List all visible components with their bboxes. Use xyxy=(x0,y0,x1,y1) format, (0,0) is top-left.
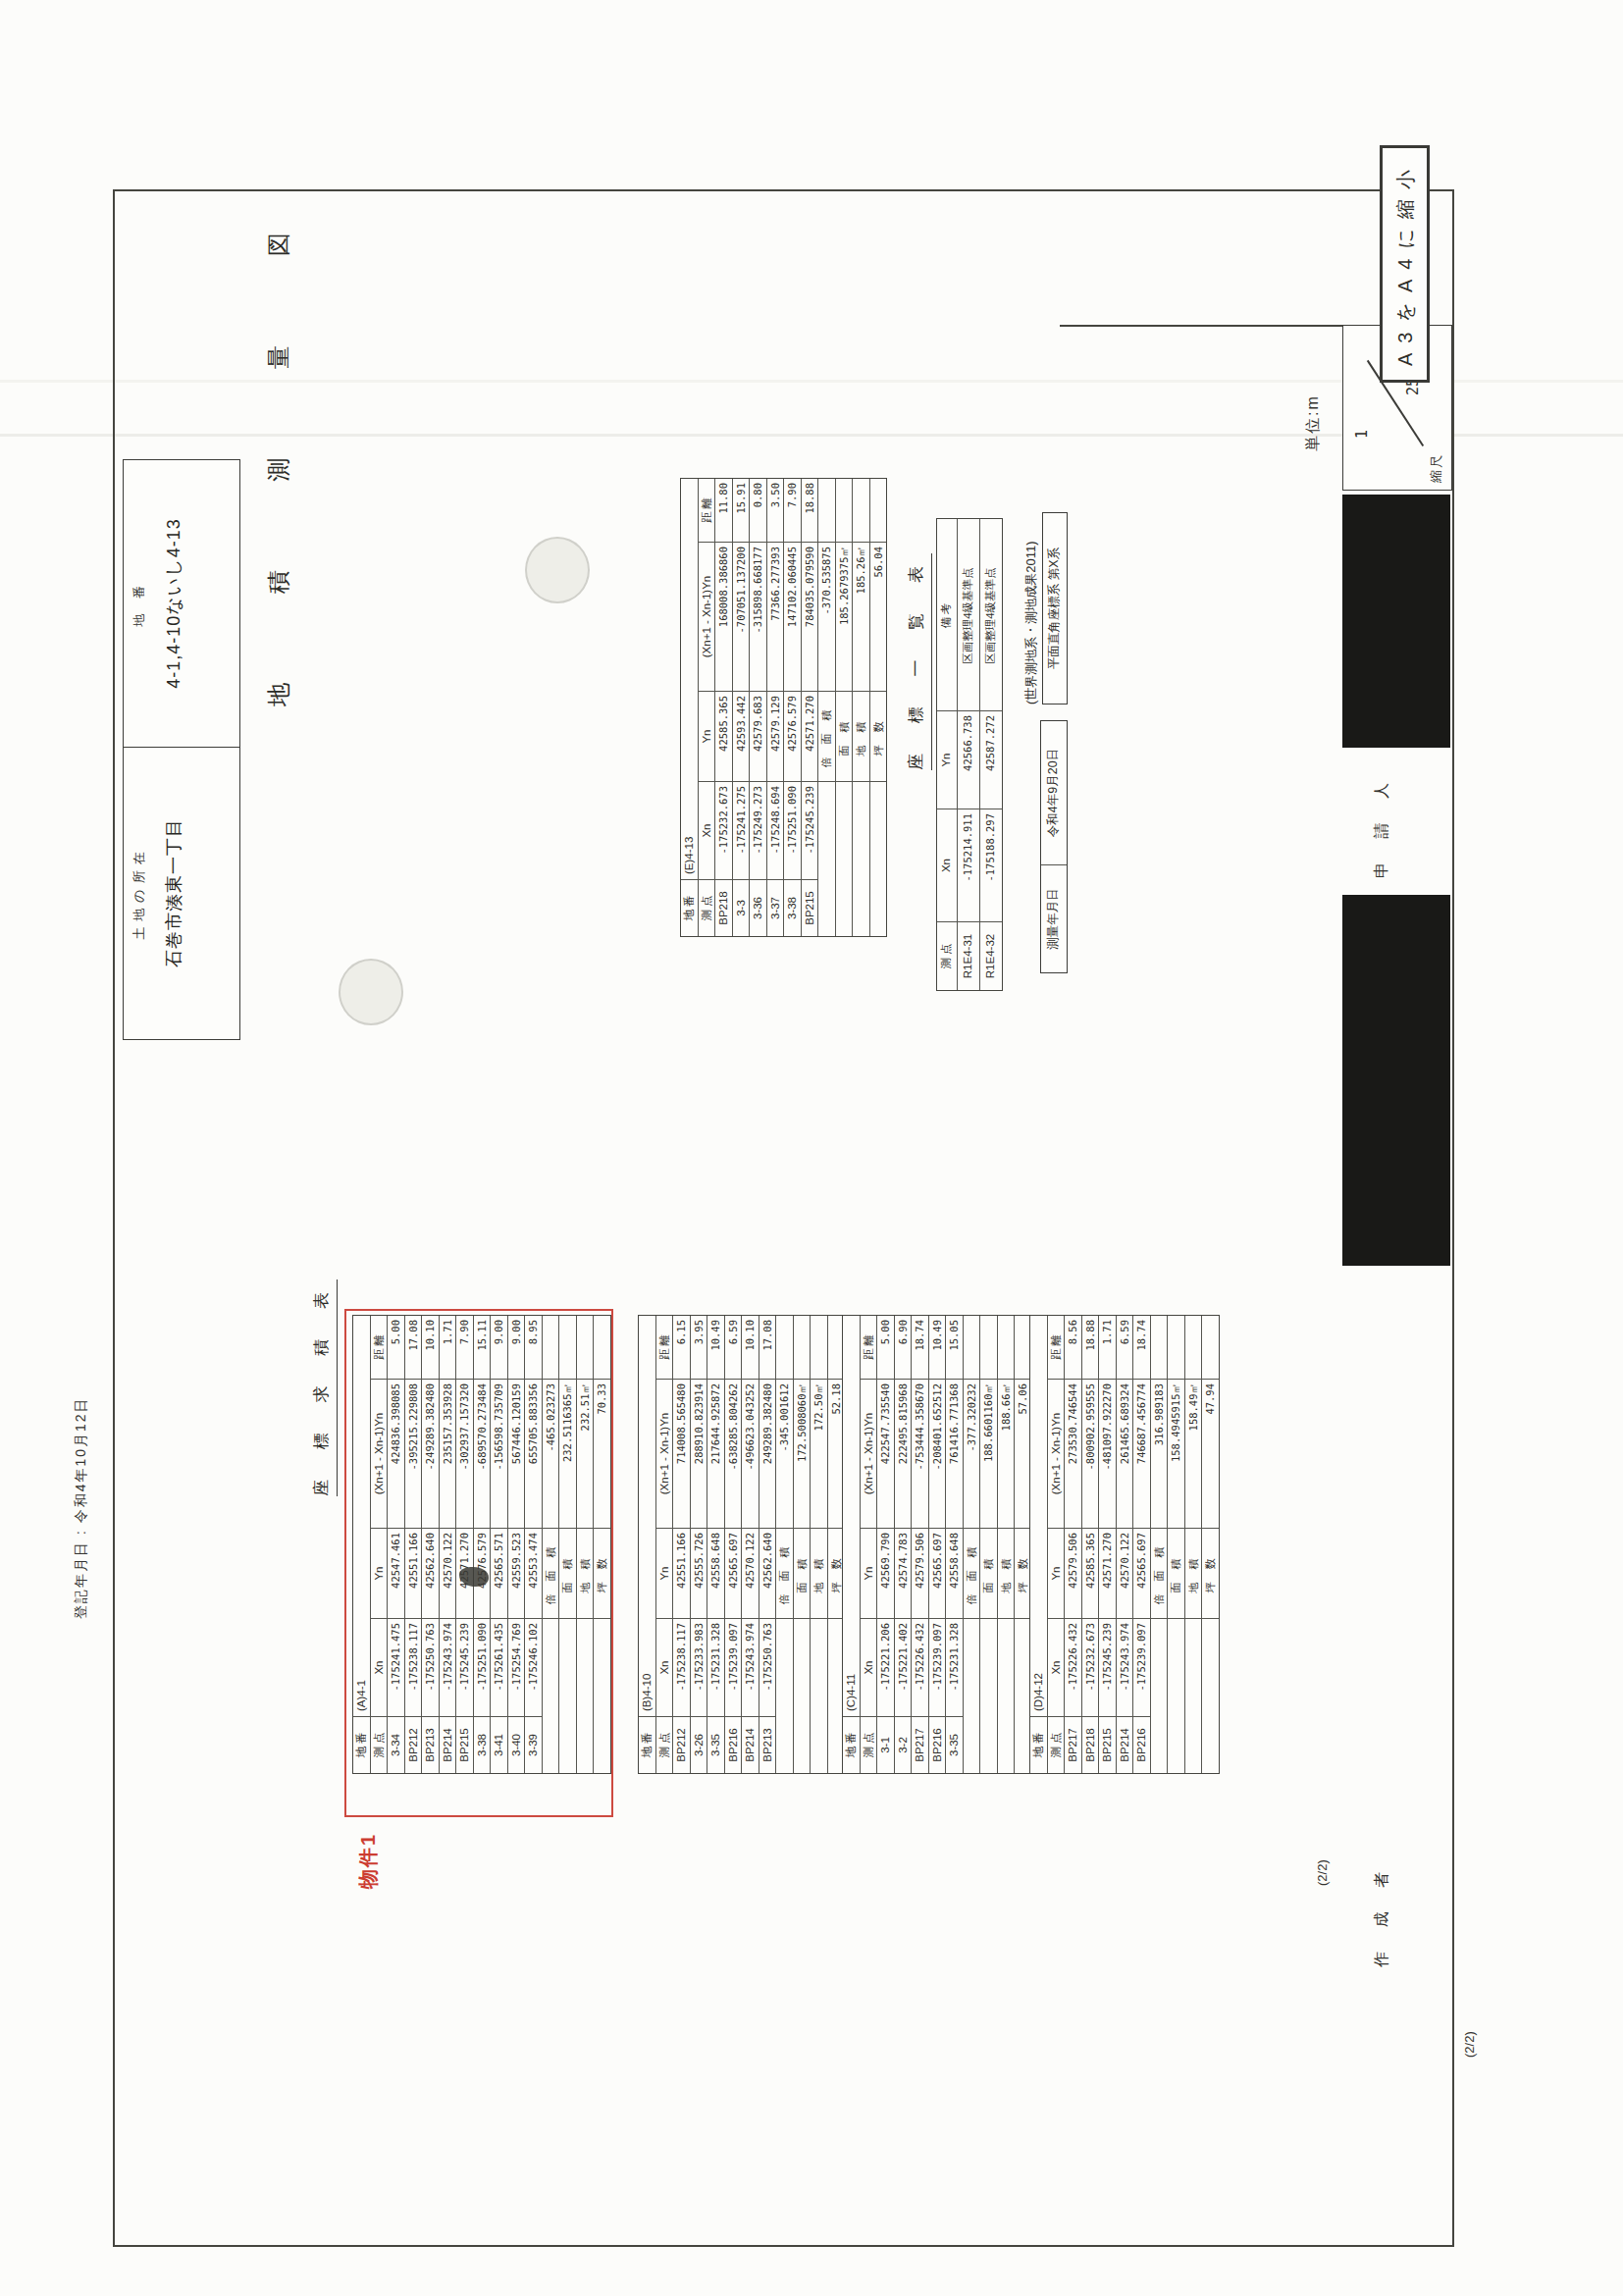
value-cell: -689570.273484 xyxy=(474,1379,491,1528)
value-cell: 区画整理4級基準点 xyxy=(958,521,979,710)
total-value-cell: 188.6601160㎡ xyxy=(980,1379,997,1528)
table-row: 3-37-175248.69442579.12977366.2773933.50 xyxy=(767,479,785,936)
value-cell: -800902.959555 xyxy=(1082,1379,1099,1528)
table-row: 測 点XnYn(Xn+1 - Xn-1)Yn距 離 xyxy=(699,479,716,936)
total-value-cell: 70.33 xyxy=(594,1379,610,1528)
table-row: BP216-175239.09742565.697-208401.6525121… xyxy=(929,1316,947,1773)
value-cell: -638285.804262 xyxy=(725,1379,742,1528)
table-row: 倍 面 積-377.320232 xyxy=(964,1316,981,1773)
value-cell: 17.08 xyxy=(405,1316,422,1379)
value-cell: -175188.297 xyxy=(980,809,1002,921)
table-row: BP214-175243.97442570.122235157.3539281.… xyxy=(440,1316,457,1773)
table-row: 面 積158.4945915㎡ xyxy=(1168,1316,1185,1773)
header-cell: (Xn+1 - Xn-1)Yn xyxy=(1048,1379,1065,1528)
value-cell: 1.71 xyxy=(1099,1316,1116,1379)
table-row: BP214-175243.97442570.122-496623.0432521… xyxy=(742,1316,759,1773)
station-cell: BP215 xyxy=(1099,1716,1116,1773)
header-cell: Yn xyxy=(656,1528,673,1618)
station-cell: BP215 xyxy=(802,879,818,936)
value-cell: 1.71 xyxy=(440,1316,456,1379)
table-row: 倍 面 積-465.023273 xyxy=(543,1316,560,1773)
value-cell: 11.80 xyxy=(715,479,732,542)
total-value-cell: 56.04 xyxy=(870,542,887,691)
table-row: 測 点XnYn備 考 xyxy=(937,519,958,990)
coord-list-title: 座 標 一 覧 表 xyxy=(905,553,932,770)
value-cell: -175231.328 xyxy=(707,1618,724,1716)
value-cell: 42574.783 xyxy=(895,1528,912,1618)
value-cell: 655705.883356 xyxy=(525,1379,542,1528)
empty-cell xyxy=(870,479,887,542)
empty-cell xyxy=(964,1618,980,1773)
value-cell: -481097.922270 xyxy=(1099,1379,1116,1528)
total-label-cell: 倍 面 積 xyxy=(776,1528,793,1618)
value-cell: 567446.120159 xyxy=(508,1379,525,1528)
value-cell: 714008.565480 xyxy=(673,1379,690,1528)
station-cell: 3-41 xyxy=(491,1716,507,1773)
value-cell: -175221.402 xyxy=(895,1618,912,1716)
empty-cell xyxy=(1151,1618,1168,1773)
table-row: BP213-175250.76342562.640-249289.3824801… xyxy=(422,1316,440,1773)
empty-cell xyxy=(853,781,869,936)
empty-cell xyxy=(818,781,835,936)
value-cell: 15.91 xyxy=(733,479,750,542)
empty-cell xyxy=(594,1618,610,1773)
value-cell: -175245.239 xyxy=(456,1618,473,1716)
header-cell: (Xn+1 - Xn-1)Yn xyxy=(656,1379,673,1528)
redaction-bar-left xyxy=(1342,895,1450,1266)
table-row: 地 積232.51㎡ xyxy=(577,1316,595,1773)
value-cell: 3.95 xyxy=(691,1316,707,1379)
empty-cell xyxy=(794,1618,811,1773)
table-row: 3-41-175261.43542565.571-156598.7357099.… xyxy=(491,1316,508,1773)
empty-cell xyxy=(594,1316,610,1379)
table-row: BP213-175250.76342562.640249289.38248017… xyxy=(759,1316,777,1773)
value-cell: 168008.386860 xyxy=(715,542,732,691)
value-cell: -175243.974 xyxy=(742,1618,759,1716)
table-row: BP217-175226.43242579.506-753444.3586701… xyxy=(912,1316,929,1773)
value-cell: 3.50 xyxy=(767,479,784,542)
table-row: 地 積188.66㎡ xyxy=(998,1316,1016,1773)
location-label: 土地の所在 xyxy=(124,747,148,1039)
header-cell: Xn xyxy=(699,781,715,879)
value-cell: -175251.090 xyxy=(474,1618,491,1716)
value-cell: 42555.726 xyxy=(691,1528,707,1618)
empty-cell xyxy=(980,1316,997,1379)
table-row: BP216-175239.09742565.697-638285.8042626… xyxy=(725,1316,743,1773)
value-cell: -175221.206 xyxy=(877,1618,894,1716)
area-table-A: 地 番(A)4-1測 点XnYn(Xn+1 - Xn-1)Yn距 離3-34-1… xyxy=(352,1315,611,1774)
value-cell: 42576.579 xyxy=(784,691,801,781)
survey-date-row: 測量年月日 令和4年9月20日 xyxy=(1040,720,1068,973)
station-cell: BP216 xyxy=(1133,1716,1150,1773)
value-cell: -175238.117 xyxy=(673,1618,690,1716)
location-box: 土地の所在 石巻市湊東一丁目 xyxy=(123,746,240,1040)
table-row: 地 番(E)4-13 xyxy=(681,479,699,936)
header-cell: 距 離 xyxy=(656,1316,673,1379)
table-row: R1E4-31-175214.91142566.738区画整理4級基準点 xyxy=(958,519,980,990)
total-label-cell: 地 積 xyxy=(811,1528,827,1618)
header-cell: Yn xyxy=(937,710,957,809)
table-row: 地 番(D)4-12 xyxy=(1030,1316,1048,1773)
total-label-cell: 地 積 xyxy=(1185,1528,1202,1618)
total-label-cell: 坪 数 xyxy=(1202,1528,1219,1618)
table-row: 3-36-175249.27342579.683-315898.6681770.… xyxy=(750,479,767,936)
table-row: 3-34-175241.47542547.461424836.3980855.0… xyxy=(388,1316,405,1773)
value-cell: -249289.382480 xyxy=(422,1379,439,1528)
total-value-cell: 232.5116365㎡ xyxy=(559,1379,576,1528)
value-cell: 10.10 xyxy=(422,1316,439,1379)
empty-cell xyxy=(1151,1316,1168,1379)
table-row: 面 積172.5008060㎡ xyxy=(794,1316,811,1773)
table-row: 測 点XnYn(Xn+1 - Xn-1)Yn距 離 xyxy=(656,1316,674,1773)
value-cell: 15.05 xyxy=(946,1316,963,1379)
total-label-cell: 倍 面 積 xyxy=(543,1528,559,1618)
value-cell: -175248.694 xyxy=(767,781,784,879)
value-cell: 42570.122 xyxy=(1117,1528,1133,1618)
value-cell: 6.59 xyxy=(725,1316,742,1379)
value-cell: 5.00 xyxy=(388,1316,404,1379)
header-cell: Xn xyxy=(656,1618,673,1716)
total-value-cell: 172.5008060㎡ xyxy=(794,1379,811,1528)
value-cell: 784035.079590 xyxy=(802,542,818,691)
empty-cell xyxy=(1202,1618,1219,1773)
empty-cell xyxy=(1168,1316,1184,1379)
total-label-cell: 面 積 xyxy=(1168,1528,1184,1618)
station-cell: BP216 xyxy=(725,1716,742,1773)
value-cell: 18.74 xyxy=(1133,1316,1150,1379)
total-label-cell: 坪 数 xyxy=(594,1528,610,1618)
station-cell: 3-35 xyxy=(707,1716,724,1773)
table-row: 倍 面 積316.989183 xyxy=(1151,1316,1169,1773)
total-label-cell: 面 積 xyxy=(836,691,853,781)
value-cell: 42562.640 xyxy=(422,1528,439,1618)
unit-note: 単位:m xyxy=(1303,394,1324,451)
total-label-cell: 面 積 xyxy=(794,1528,811,1618)
value-cell: 235157.353928 xyxy=(440,1379,456,1528)
total-label-cell: 倍 面 積 xyxy=(964,1528,980,1618)
table-row: 3-38-175251.09042576.579147102.0604457.9… xyxy=(784,479,802,936)
total-label-cell: 地 積 xyxy=(853,691,869,781)
total-value-cell: 158.49㎡ xyxy=(1185,1379,1202,1528)
value-cell: 7.90 xyxy=(456,1316,473,1379)
value-cell: -315898.668177 xyxy=(750,542,766,691)
total-value-cell: 172.50㎡ xyxy=(811,1379,827,1528)
document-title: 地 積 測 量 図 xyxy=(263,191,294,706)
total-value-cell: 185.26㎡ xyxy=(853,542,869,691)
station-cell: 3-26 xyxy=(691,1716,707,1773)
property-stamp: 物件1 xyxy=(355,1833,382,1889)
header-cell: 測 点 xyxy=(656,1716,673,1773)
total-value-cell: 185.2679375㎡ xyxy=(836,542,853,691)
value-cell: -175232.673 xyxy=(715,781,732,879)
station-cell: 3-38 xyxy=(784,879,801,936)
table-row: BP212-175238.11742551.166-395215.2298081… xyxy=(405,1316,423,1773)
station-cell: 3-1 xyxy=(877,1716,894,1773)
total-label-cell: 面 積 xyxy=(980,1528,997,1618)
empty-cell xyxy=(811,1316,827,1379)
empty-cell xyxy=(1168,1618,1184,1773)
value-cell: 8.95 xyxy=(525,1316,542,1379)
total-label-cell: 倍 面 積 xyxy=(818,691,835,781)
station-cell: BP215 xyxy=(456,1716,473,1773)
total-value-cell: 316.989183 xyxy=(1151,1379,1168,1528)
value-cell: -175239.097 xyxy=(929,1618,946,1716)
empty-cell xyxy=(1185,1316,1202,1379)
parcel-value-cell: (D)4-12 xyxy=(1030,1316,1047,1716)
empty-cell xyxy=(836,479,853,542)
table-row: 3-39-175246.10242553.474655705.8833568.9… xyxy=(525,1316,543,1773)
station-cell: 3-37 xyxy=(767,879,784,936)
empty-cell xyxy=(964,1316,980,1379)
value-cell: 424836.398085 xyxy=(388,1379,404,1528)
value-cell: 42559.523 xyxy=(508,1528,525,1618)
value-cell: -175250.763 xyxy=(759,1618,776,1716)
value-cell: -175239.097 xyxy=(725,1618,742,1716)
table-row: 3-2-175221.40242574.783222495.8159686.90 xyxy=(895,1316,913,1773)
value-cell: 42587.272 xyxy=(980,710,1002,809)
empty-cell xyxy=(811,1618,827,1773)
value-cell: 42579.506 xyxy=(912,1528,928,1618)
value-cell: 10.49 xyxy=(929,1316,946,1379)
total-label-cell: 地 積 xyxy=(998,1528,1015,1618)
value-cell: -175245.239 xyxy=(802,781,818,879)
table-row: BP215-175245.23942571.270-302937.1573207… xyxy=(456,1316,474,1773)
value-cell: -156598.735709 xyxy=(491,1379,507,1528)
value-cell: 42579.683 xyxy=(750,691,766,781)
station-cell: 3-38 xyxy=(474,1716,491,1773)
table-row: R1E4-32-175188.29742587.272区画整理4級基準点 xyxy=(980,519,1002,990)
table-row: BP215-175245.23942571.270-481097.9222701… xyxy=(1099,1316,1117,1773)
survey-table-title: 座 標 求 積 表 xyxy=(310,1279,338,1496)
table-row: 面 積185.2679375㎡ xyxy=(836,479,854,936)
table-row: 面 積232.5116365㎡ xyxy=(559,1316,577,1773)
value-cell: -175249.273 xyxy=(750,781,766,879)
header-cell: Yn xyxy=(1048,1528,1065,1618)
station-cell: R1E4-32 xyxy=(980,921,1002,990)
value-cell: 422547.735540 xyxy=(877,1379,894,1528)
header-cell: 距 離 xyxy=(1048,1316,1065,1379)
value-cell: 746687.456774 xyxy=(1133,1379,1150,1528)
header-cell: Xn xyxy=(371,1618,388,1716)
table-row: BP218-175232.67342585.365-800902.9595551… xyxy=(1082,1316,1100,1773)
value-cell: 77366.277393 xyxy=(767,542,784,691)
lot-number-label: 地 番 xyxy=(124,460,148,747)
station-cell: BP214 xyxy=(440,1716,456,1773)
header-cell: 備 考 xyxy=(937,521,957,710)
value-cell: 区画整理4級基準点 xyxy=(980,521,1002,710)
value-cell: 9.00 xyxy=(508,1316,525,1379)
empty-cell xyxy=(818,479,835,542)
header-cell: 測 点 xyxy=(1048,1716,1065,1773)
empty-cell xyxy=(543,1618,559,1773)
table-row: 3-38-175251.09042576.579-689570.27348415… xyxy=(474,1316,492,1773)
total-value-cell: -370.535875 xyxy=(818,542,835,691)
value-cell: 17.08 xyxy=(759,1316,776,1379)
parcel-value-cell: (A)4-1 xyxy=(353,1316,370,1716)
value-cell: -175245.239 xyxy=(1099,1618,1116,1716)
page-number-inner: (2/2) xyxy=(1315,1859,1330,1886)
value-cell: 42547.461 xyxy=(388,1528,404,1618)
station-cell: BP212 xyxy=(405,1716,422,1773)
station-cell: BP218 xyxy=(715,879,732,936)
station-cell: 3-2 xyxy=(895,1716,912,1773)
value-cell: 6.90 xyxy=(895,1316,912,1379)
table-row: 3-35-175231.32842558.648217644.92587210.… xyxy=(707,1316,725,1773)
value-cell: 761416.771368 xyxy=(946,1379,963,1528)
value-cell: 42570.122 xyxy=(742,1528,759,1618)
station-cell: BP217 xyxy=(1065,1716,1081,1773)
rotated-landscape-sheet: 登記年月日 : 令和4年10月12日 土地の所在 石巻市湊東一丁目 地 番 4-… xyxy=(0,0,1623,2296)
value-cell: -175261.435 xyxy=(491,1618,507,1716)
value-cell: -175238.117 xyxy=(405,1618,422,1716)
table-row: 測 点XnYn(Xn+1 - Xn-1)Yn距 離 xyxy=(371,1316,389,1773)
value-cell: 222495.815968 xyxy=(895,1379,912,1528)
empty-cell xyxy=(794,1316,811,1379)
value-cell: -208401.652512 xyxy=(929,1379,946,1528)
empty-cell xyxy=(559,1618,576,1773)
value-cell: 42551.166 xyxy=(673,1528,690,1618)
empty-cell xyxy=(836,781,853,936)
value-cell: -175233.983 xyxy=(691,1618,707,1716)
table-row: BP212-175238.11742551.166714008.5654806.… xyxy=(673,1316,691,1773)
page-number-outer: (2/2) xyxy=(1462,2031,1477,2058)
value-cell: 42558.648 xyxy=(946,1528,963,1618)
table-row: BP218-175232.67342585.365168008.38686011… xyxy=(715,479,733,936)
table-row: 坪 数47.94 xyxy=(1202,1316,1219,1773)
empty-cell xyxy=(776,1618,793,1773)
area-table-D: 地 番(D)4-12測 点XnYn(Xn+1 - Xn-1)Yn距 離BP217… xyxy=(1029,1315,1220,1774)
header-cell: (Xn+1 - Xn-1)Yn xyxy=(861,1379,877,1528)
header-cell: (Xn+1 - Xn-1)Yn xyxy=(371,1379,388,1528)
value-cell: 42551.166 xyxy=(405,1528,422,1618)
value-cell: 217644.925872 xyxy=(707,1379,724,1528)
scale-label: 縮尺 xyxy=(1428,453,1445,483)
station-cell: BP216 xyxy=(929,1716,946,1773)
empty-cell xyxy=(543,1316,559,1379)
header-cell: Xn xyxy=(1048,1618,1065,1716)
area-table-B: 地 番(B)4-10測 点XnYn(Xn+1 - Xn-1)Yn距 離BP212… xyxy=(638,1315,845,1774)
value-cell: -753444.358670 xyxy=(912,1379,928,1528)
station-cell: 3-34 xyxy=(388,1716,404,1773)
value-cell: 42570.122 xyxy=(440,1528,456,1618)
value-cell: -302937.157320 xyxy=(456,1379,473,1528)
value-cell: -175243.974 xyxy=(440,1618,456,1716)
value-cell: 42593.442 xyxy=(733,691,750,781)
redaction-bar-right xyxy=(1342,495,1450,748)
station-cell: BP214 xyxy=(1117,1716,1133,1773)
total-label-cell: 面 積 xyxy=(559,1528,576,1618)
parcel-label-cell: 地 番 xyxy=(1030,1716,1047,1773)
value-cell: 5.00 xyxy=(877,1316,894,1379)
parcel-label-cell: 地 番 xyxy=(681,879,698,936)
header-cell: 測 点 xyxy=(699,879,715,936)
header-cell: Xn xyxy=(861,1618,877,1716)
area-table-C: 地 番(C)4-11測 点XnYn(Xn+1 - Xn-1)Yn距 離3-1-1… xyxy=(842,1315,1032,1774)
table-row: 地 積172.50㎡ xyxy=(811,1316,828,1773)
parcel-label-cell: 地 番 xyxy=(843,1716,860,1773)
lot-number-value: 4-1,4-10ないし4-13 xyxy=(162,460,185,747)
value-cell: 42566.738 xyxy=(958,710,979,809)
station-cell: BP213 xyxy=(422,1716,439,1773)
table-row: BP217-175226.43242579.506273530.7465448.… xyxy=(1065,1316,1082,1773)
empty-cell xyxy=(1185,1618,1202,1773)
value-cell: -175214.911 xyxy=(958,809,979,921)
table-row: 地 番(B)4-10 xyxy=(639,1316,656,1773)
table-row: 3-3-175241.27542593.442-707051.13720015.… xyxy=(733,479,751,936)
value-cell: 42553.474 xyxy=(525,1528,542,1618)
value-cell: 6.59 xyxy=(1117,1316,1133,1379)
total-value-cell: 232.51㎡ xyxy=(577,1379,594,1528)
lot-number-box: 地 番 4-1,4-10ないし4-13 xyxy=(123,459,240,748)
scale-numerator: 1 xyxy=(1353,430,1371,439)
empty-cell xyxy=(980,1618,997,1773)
punch-hole-bottom xyxy=(339,959,403,1025)
table-row: 3-40-175254.76942559.523567446.1201599.0… xyxy=(508,1316,526,1773)
header-cell: Xn xyxy=(937,809,957,921)
table-row: 倍 面 積-370.535875 xyxy=(818,479,836,936)
station-cell: BP218 xyxy=(1082,1716,1099,1773)
value-cell: 10.49 xyxy=(707,1316,724,1379)
value-cell: 42565.697 xyxy=(1133,1528,1150,1618)
value-cell: 42565.697 xyxy=(929,1528,946,1618)
header-cell: 距 離 xyxy=(699,479,715,542)
value-cell: -707051.137200 xyxy=(733,542,750,691)
value-cell: -175243.974 xyxy=(1117,1618,1133,1716)
empty-cell xyxy=(853,479,869,542)
station-cell: R1E4-31 xyxy=(958,921,979,990)
empty-cell xyxy=(559,1316,576,1379)
station-cell: BP214 xyxy=(742,1716,759,1773)
table-row: 3-35-175231.32842558.648761416.77136815.… xyxy=(946,1316,964,1773)
header-cell: Yn xyxy=(699,691,715,781)
total-value-cell: -345.001612 xyxy=(776,1379,793,1528)
empty-cell xyxy=(1202,1316,1219,1379)
crs-note-box: 平面直角座標系 第X系 xyxy=(1042,512,1068,704)
table-row: BP214-175243.97442570.122261465.6893246.… xyxy=(1117,1316,1134,1773)
value-cell: 273530.746544 xyxy=(1065,1379,1081,1528)
applicant-label: 申 請 人 xyxy=(1372,773,1392,878)
parcel-value-cell: (B)4-10 xyxy=(639,1316,655,1716)
value-cell: -175226.432 xyxy=(1065,1618,1081,1716)
table-row: 地 積185.26㎡ xyxy=(853,479,870,936)
empty-cell xyxy=(776,1316,793,1379)
value-cell: -175241.475 xyxy=(388,1618,404,1716)
value-cell: -175254.769 xyxy=(508,1618,525,1716)
station-cell: 3-3 xyxy=(733,879,750,936)
station-cell: 3-36 xyxy=(750,879,766,936)
station-cell: BP212 xyxy=(673,1716,690,1773)
page: 登記年月日 : 令和4年10月12日 土地の所在 石巻市湊東一丁目 地 番 4-… xyxy=(0,0,1623,2296)
scanned-survey-document: { "colors": { "accent_red": "#cd4a40", "… xyxy=(0,0,1623,2296)
value-cell: 9.00 xyxy=(491,1316,507,1379)
station-cell: 3-39 xyxy=(525,1716,542,1773)
value-cell: -175251.090 xyxy=(784,781,801,879)
empty-cell xyxy=(998,1618,1015,1773)
total-value-cell: 47.94 xyxy=(1202,1379,1219,1528)
table-row: 地 積158.49㎡ xyxy=(1185,1316,1203,1773)
total-value-cell: -465.023273 xyxy=(543,1379,559,1528)
value-cell: -175231.328 xyxy=(946,1618,963,1716)
datum-note: (世界測地系・測地成果2011) xyxy=(1022,541,1040,704)
value-cell: 18.74 xyxy=(912,1316,928,1379)
registration-date-note: 登記年月日 : 令和4年10月12日 xyxy=(73,1396,90,1619)
header-cell: 測 点 xyxy=(937,921,957,990)
punch-hole-top xyxy=(525,537,590,603)
parcel-value-cell: (C)4-11 xyxy=(843,1316,860,1716)
total-label-cell: 地 積 xyxy=(577,1528,594,1618)
total-value-cell: 158.4945915㎡ xyxy=(1168,1379,1184,1528)
total-value-cell: 188.66㎡ xyxy=(998,1379,1015,1528)
